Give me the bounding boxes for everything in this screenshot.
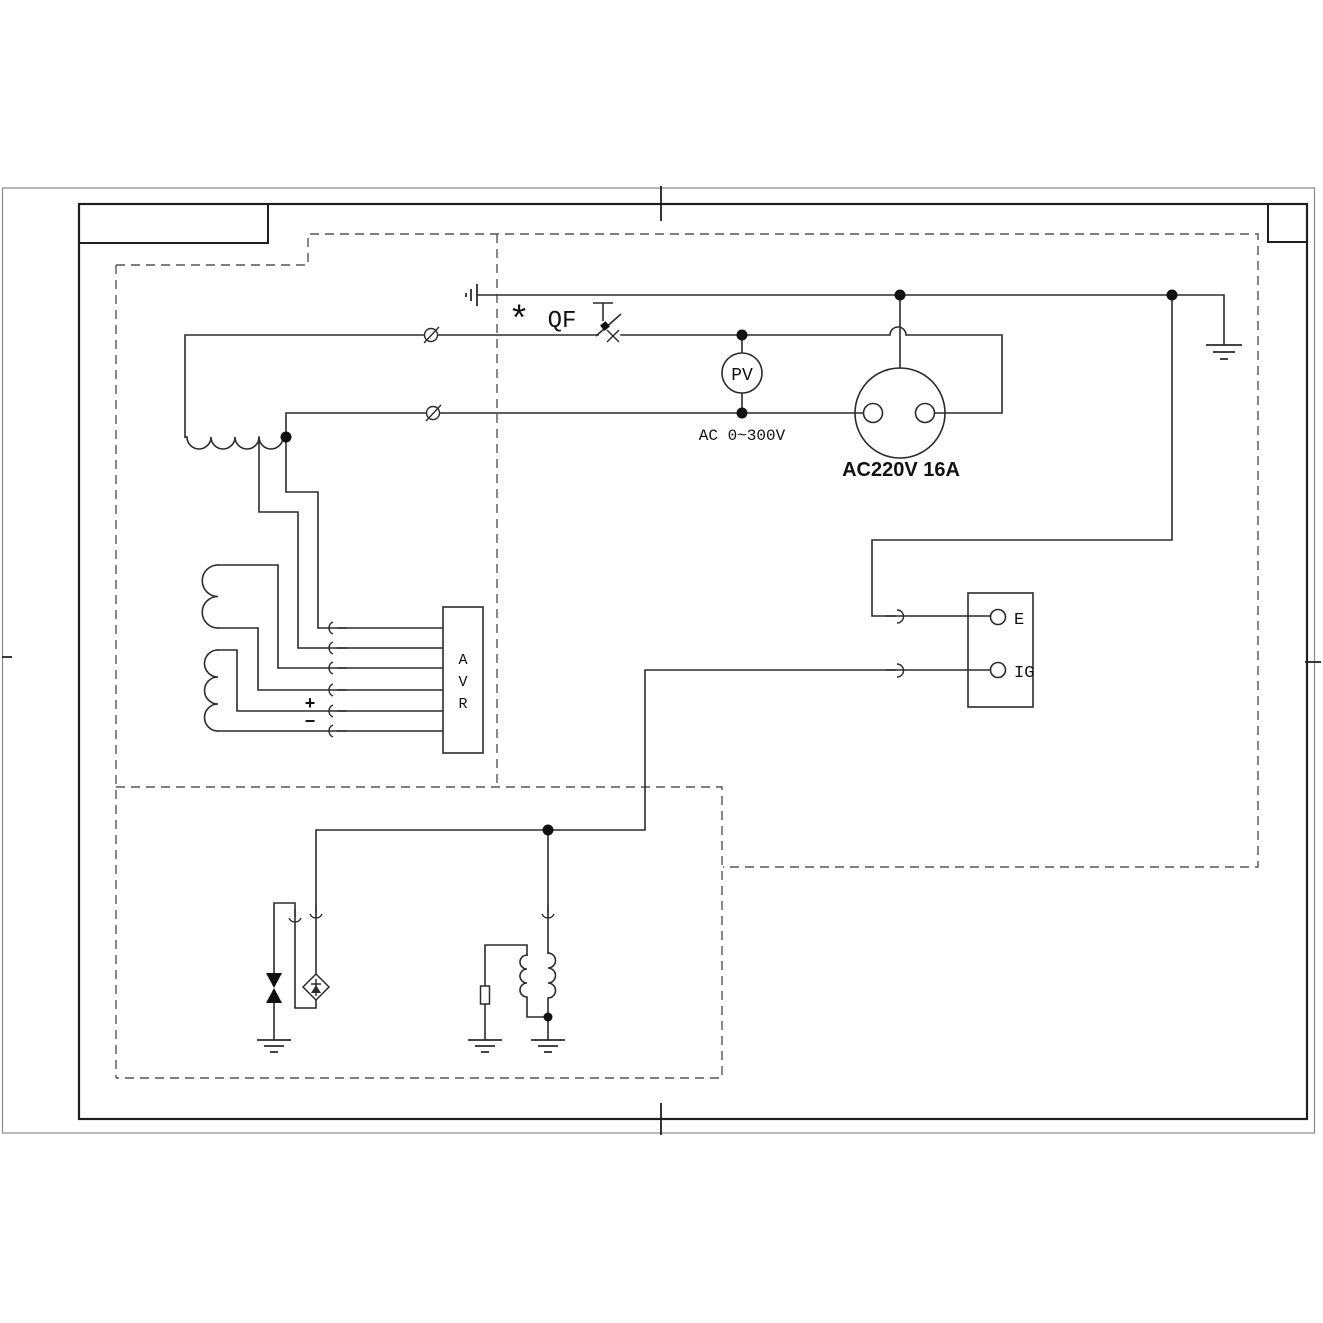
- junction-dot: [544, 1013, 553, 1022]
- sheet-frame: [2, 186, 1321, 1135]
- inner-border: [79, 204, 1307, 1119]
- rectifier-loop-wire: [274, 903, 316, 1040]
- engine-plug-connectors: [289, 905, 554, 922]
- ignition-coil-secondary: [520, 955, 548, 1017]
- breaker-x-mark: [607, 330, 619, 342]
- ignition-coil-primary: [548, 953, 556, 1040]
- avr-letter-v: V: [458, 674, 467, 691]
- title-block-left: [79, 204, 268, 243]
- ground-symbol-diodes: [257, 1040, 291, 1052]
- protection-diodes: [266, 973, 282, 1003]
- avr-letter-r: R: [458, 696, 467, 713]
- ground-symbol-left: [466, 284, 477, 306]
- junction-dot: [543, 825, 554, 836]
- diode-top: [266, 973, 282, 988]
- avr-letter-a: A: [458, 652, 467, 669]
- stator-main-winding: [185, 437, 286, 449]
- diode-bottom: [266, 988, 282, 1003]
- centering-marks: [2, 186, 1321, 1135]
- socket-body: [855, 368, 945, 458]
- avr-feed-5: [218, 650, 443, 711]
- outer-border: [3, 188, 1315, 1133]
- rectifier-diode-triangle: [311, 985, 321, 993]
- junction-dot: [737, 408, 748, 419]
- junction-dot: [737, 330, 748, 341]
- title-block-right: [1268, 204, 1307, 242]
- resistor-rect: [481, 986, 490, 1004]
- section-outlines: [116, 234, 1258, 1078]
- field-winding: [205, 650, 219, 731]
- exciter-winding: [202, 565, 218, 628]
- connector-slash-neutral: [426, 405, 441, 421]
- breaker-latch: [600, 321, 610, 331]
- junction-dots: [281, 290, 1178, 1022]
- qf-breaker: [593, 303, 621, 342]
- socket-rating-label: AC220V 16A: [842, 459, 960, 481]
- breaker-mark-label: *: [508, 301, 530, 342]
- schematic-canvas: * QF PV AC 0~300V AC220V 16A A V R + − E…: [0, 0, 1323, 1323]
- terminal-plug-connectors: [886, 610, 904, 677]
- connector-symbols: [289, 327, 904, 922]
- junction-dot: [895, 290, 906, 301]
- power-socket: [855, 368, 945, 458]
- voltmeter-label: PV: [731, 366, 753, 386]
- spark-plug-resistor: [481, 986, 490, 1004]
- avr-plug-connectors: [329, 622, 347, 737]
- ground-symbol-coil: [531, 1040, 565, 1052]
- socket-pin-right: [916, 404, 935, 423]
- generator-section-outline: [116, 234, 1258, 867]
- hot-line-right: [621, 327, 1002, 413]
- ground-bus-wire: [477, 295, 1224, 345]
- connector-slash-hot: [424, 327, 439, 343]
- breaker-label: QF: [548, 308, 577, 335]
- polarity-plus-label: +: [305, 695, 316, 715]
- ground-symbol-plug: [468, 1040, 502, 1052]
- socket-pin-left: [864, 404, 883, 423]
- terminal-e-label: E: [1014, 611, 1024, 630]
- ig-terminal-wire: [316, 670, 990, 974]
- polarity-minus-label: −: [305, 713, 316, 733]
- rectifier-diode: [303, 974, 329, 1000]
- terminal-ig-label: IG: [1014, 664, 1034, 683]
- avr-feed-1: [286, 437, 443, 628]
- hot-line-left: [185, 335, 598, 437]
- junction-dot: [1167, 290, 1178, 301]
- terminal-e-circle: [991, 610, 1006, 625]
- voltmeter-range-label: AC 0~300V: [699, 427, 786, 445]
- avr-feed-4: [218, 628, 443, 690]
- junction-dot: [281, 432, 292, 443]
- ground-symbol-topright: [1206, 345, 1242, 359]
- terminal-ig-circle: [991, 663, 1006, 678]
